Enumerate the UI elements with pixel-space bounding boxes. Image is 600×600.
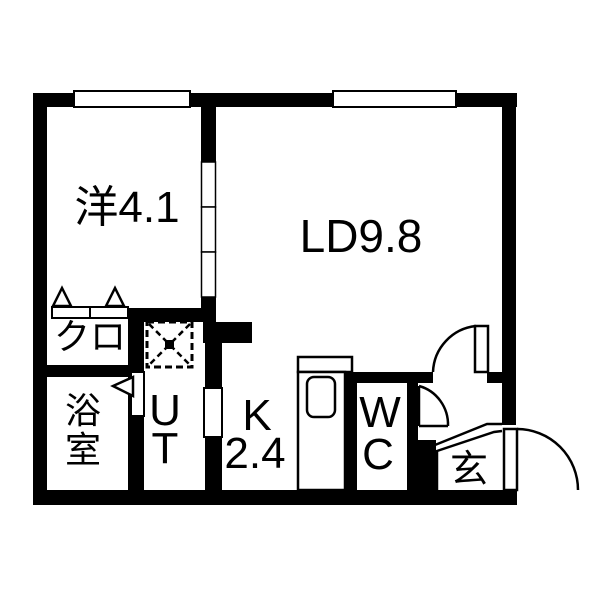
entrance-door-arc xyxy=(517,429,578,490)
wall-hall-right xyxy=(487,372,502,383)
room-label-living-dining: LD9.8 xyxy=(300,210,423,262)
room-label-closet: クロ xyxy=(54,316,126,357)
washing-machine-pan-icon xyxy=(147,322,192,367)
bathroom-door-arrow-icon xyxy=(113,377,133,396)
room-label-bathroom-char2: 室 xyxy=(65,429,101,470)
kitchen-sink-icon xyxy=(307,377,335,417)
floorplan-canvas: 洋4.1 LD9.8 クロ 浴 室 U T K 2.4 W C 玄 xyxy=(0,0,600,600)
step-line-upper xyxy=(430,424,502,447)
room-label-kitchen-line2: 2.4 xyxy=(224,429,285,478)
ld-hall-door xyxy=(433,326,488,372)
window-living-dining xyxy=(333,91,456,107)
wall-bottom xyxy=(33,490,517,505)
floorplan: 洋4.1 LD9.8 クロ 浴 室 U T K 2.4 W C 玄 xyxy=(0,0,600,600)
room-label-wc-char2: C xyxy=(362,430,394,479)
wall-right xyxy=(502,93,516,425)
wall-left xyxy=(33,93,47,505)
washer-pan-center xyxy=(165,340,174,349)
kitchen-sink-counter xyxy=(298,357,352,490)
wall-kitchen-stub xyxy=(203,322,252,343)
utility-door xyxy=(204,388,222,437)
sliding-door-panel xyxy=(202,252,216,297)
sliding-door-west-ld xyxy=(202,162,216,297)
folding-door-triangle-icon xyxy=(53,288,71,306)
room-label-bathroom-char1: 浴 xyxy=(65,390,101,431)
window-west-room xyxy=(74,91,190,107)
wall-closet-bath xyxy=(47,365,128,377)
entrance-door-leaf xyxy=(504,429,517,490)
ld-door-arc xyxy=(433,326,476,372)
wall-wc-top xyxy=(345,372,433,383)
kitchen-counter-top xyxy=(298,357,352,372)
ld-door-leaf xyxy=(475,326,488,372)
entrance-door xyxy=(504,429,578,490)
wall-kitchen-wc xyxy=(345,372,357,490)
room-label-utility-char2: T xyxy=(152,424,179,473)
wc-door-arc xyxy=(419,386,448,426)
room-label-western: 洋4.1 xyxy=(74,183,179,232)
wc-door xyxy=(419,386,448,426)
closet-folding-door xyxy=(52,288,128,318)
sliding-door-panel xyxy=(202,207,216,252)
folding-door-triangle-icon xyxy=(106,288,124,306)
room-label-entrance: 玄 xyxy=(450,449,488,491)
sliding-door-panel xyxy=(202,162,216,207)
